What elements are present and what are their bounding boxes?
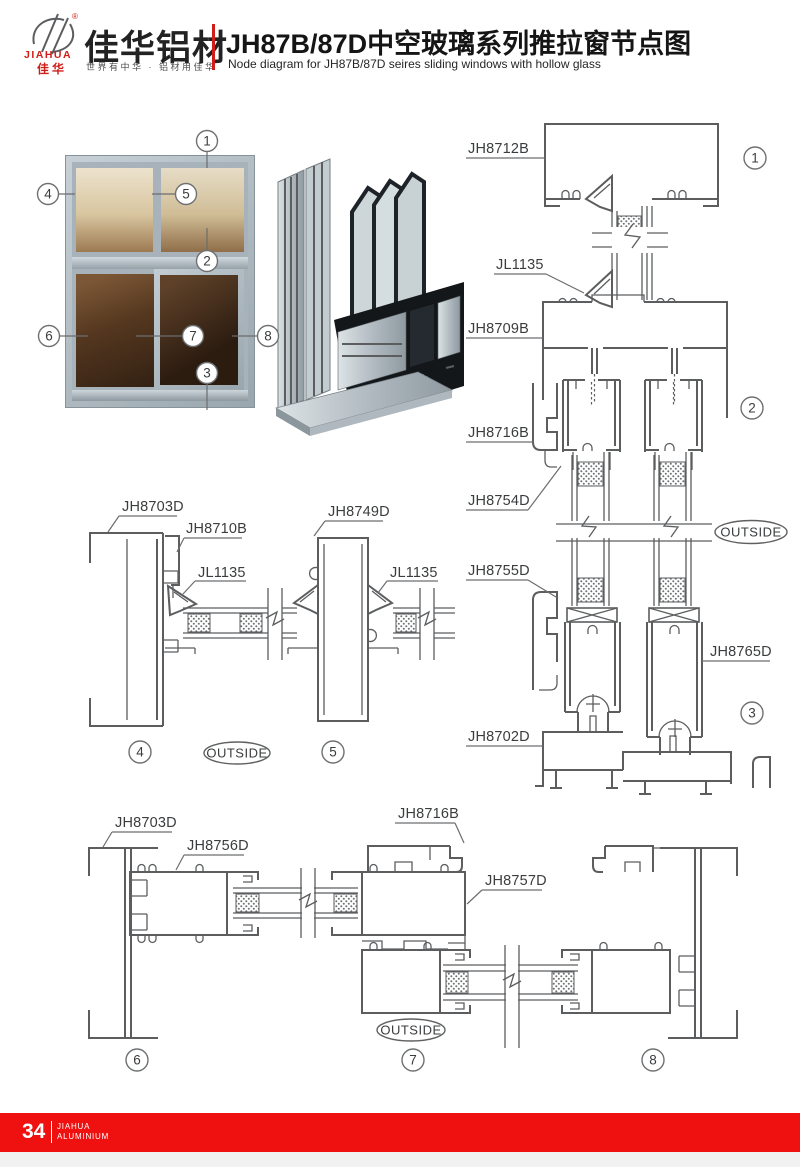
page-title: JH87B/87D中空玻璃系列推拉窗节点图 — [226, 22, 691, 61]
header-divider — [212, 24, 215, 70]
label-jh8703d-mid: JH8703D — [122, 499, 184, 515]
photo-callout-8-number: 8 — [264, 329, 272, 344]
outside-text-s2: OUTSIDE — [720, 525, 781, 540]
photo-callout-1-number: 1 — [203, 134, 211, 149]
transom-profile-jh8709b — [543, 295, 727, 418]
horizontal-section-drawing-sliding: JH8703D JH8756D JH8716B JH8757D OUTSIDE … — [55, 795, 760, 1085]
label-jh8703d-bottom: JH8703D — [115, 815, 177, 831]
footer-divider — [51, 1121, 52, 1143]
photo-callout-6-number: 6 — [45, 329, 53, 344]
page-bottom-margin — [0, 1152, 800, 1167]
sash-bottom-right-jh8765d — [647, 622, 702, 755]
label-jh8754d: JH8754D — [468, 493, 530, 509]
label-jh8755d: JH8755D — [468, 563, 530, 579]
label-jh8710b: JH8710B — [186, 521, 247, 537]
outside-text-bottom: OUTSIDE — [380, 1023, 441, 1038]
photo-callout-3-number: 3 — [203, 366, 211, 381]
label-jh8716b-s2: JH8716B — [468, 425, 529, 441]
label-jl1135-s1: JL1135 — [496, 257, 544, 273]
gasket-jl1135-jamb — [168, 586, 196, 615]
jamb-right — [593, 846, 737, 1038]
callout-5-number: 5 — [329, 745, 337, 760]
label-jh8709b: JH8709B — [468, 321, 529, 337]
callout-7-number: 7 — [409, 1053, 417, 1068]
setting-blocks — [567, 608, 699, 622]
brand-slogan: 世界有中华 · 铝材用佳华 — [86, 60, 217, 73]
logo-text-cn: 佳华 — [37, 60, 67, 77]
label-jh8716b-bottom: JH8716B — [398, 806, 459, 822]
fixed-glass-run-right — [393, 588, 455, 660]
interlock-profile-jh8755d — [533, 592, 557, 690]
label-jl1135-mid-left: JL1135 — [198, 565, 246, 581]
photo-callout-7-number: 7 — [189, 329, 197, 344]
label-jh8757d: JH8757D — [485, 873, 547, 889]
callout-8-number: 8 — [649, 1053, 657, 1068]
footer-brand-line2: ALUMINIUM — [57, 1132, 109, 1141]
photo-callout-5-number: 5 — [182, 187, 190, 202]
vertical-section-drawing: JH8712B JL1135 JH8709B JH8716B JH8754D J… — [440, 105, 800, 805]
footer-bar — [0, 1113, 800, 1152]
jamb-profile-jh8703d — [90, 533, 178, 726]
jamb-left-jh8703d — [89, 848, 158, 1038]
callout-2-number: 2 — [748, 401, 756, 416]
photo-callout-4-number: 4 — [44, 187, 52, 202]
gasket-jl1135-mullion-left — [294, 585, 318, 614]
gasket-jl1135-top — [586, 176, 612, 211]
page-header: ® JIAHUA 佳华 佳华铝材 世界有中华 · 铝材用佳华 JH87B/87D… — [0, 0, 800, 85]
callout-1-number: 1 — [751, 151, 759, 166]
page-subtitle: Node diagram for JH87B/87D seires slidin… — [228, 57, 601, 71]
label-jh8756d: JH8756D — [187, 838, 249, 854]
footer-brand-line1: JIAHUA — [57, 1122, 90, 1131]
footer-page-number: 34 — [22, 1120, 45, 1144]
interlock-profile-jh8716b — [533, 383, 557, 467]
label-jh8712b: JH8712B — [468, 141, 529, 157]
fixed-glass-run-left — [183, 588, 297, 660]
horizontal-section-drawing-fixed: JH8703D JH8710B JL1135 JH8749D JL1135 4 … — [60, 478, 460, 778]
label-jh8765d: JH8765D — [710, 644, 772, 660]
outside-text-mid: OUTSIDE — [206, 746, 267, 761]
sash-lower-right — [562, 943, 670, 1013]
label-jh8702d: JH8702D — [468, 729, 530, 745]
callout-3-number: 3 — [748, 706, 756, 721]
callout-6-number: 6 — [133, 1053, 141, 1068]
photo-callout-overlay: 1 4 5 2 6 7 8 3 — [30, 120, 300, 430]
label-jl1135-mid-right: JL1135 — [390, 565, 438, 581]
callout-4-number: 4 — [136, 745, 144, 760]
photo-callout-2-number: 2 — [203, 254, 211, 269]
head-frame-profile-jh8712b — [545, 124, 718, 206]
label-jh8749d: JH8749D — [328, 504, 390, 520]
registered-mark: ® — [72, 12, 78, 21]
mullion-profile-jh8749d — [310, 538, 377, 721]
